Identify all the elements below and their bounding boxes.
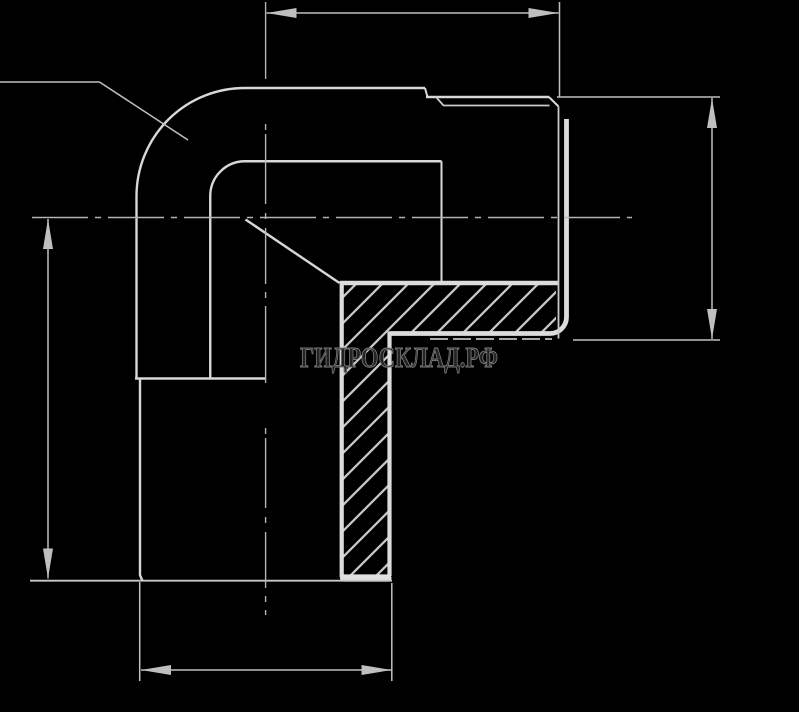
svg-text:ГИДРОСКЛАД.РФ: ГИДРОСКЛАД.РФ (300, 343, 498, 374)
